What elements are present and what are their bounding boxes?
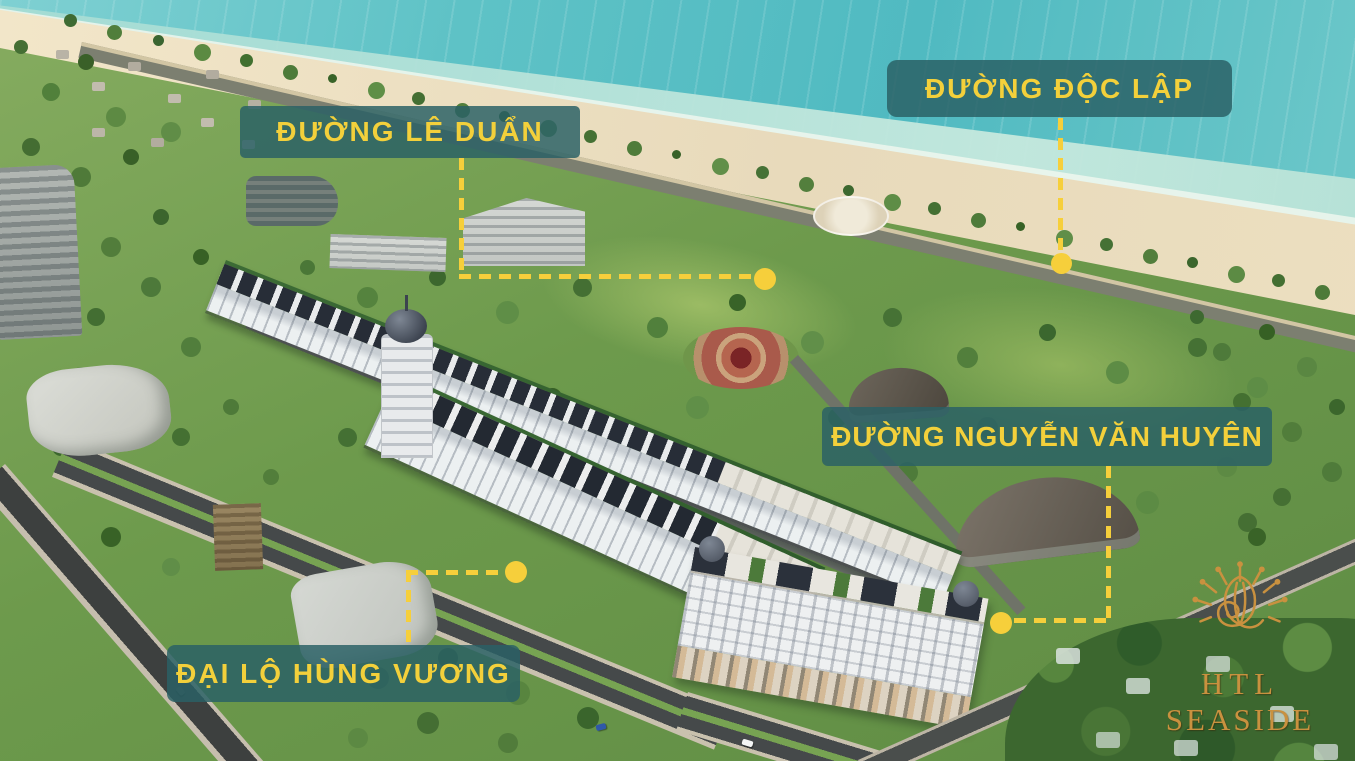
street-label-text: ĐƯỜNG LÊ DUẨN <box>276 116 544 148</box>
logo-wordmark-line2: SEASIDE <box>1160 702 1320 738</box>
leader-line-hung-vuong-horizontal <box>406 570 503 575</box>
street-label-hung-vuong: ĐẠI LỘ HÙNG VƯƠNG <box>167 645 520 702</box>
le-duan-office-building <box>463 198 585 266</box>
street-label-text: ĐƯỜNG ĐỘC LẬP <box>925 73 1194 105</box>
curved-office-block <box>246 176 338 226</box>
leader-dot-le-duan <box>754 268 776 290</box>
street-label-text: ĐƯỜNG NGUYỄN VĂN HUYÊN <box>831 421 1263 453</box>
leader-line-hung-vuong-vertical <box>406 570 411 645</box>
tree-cluster-park <box>300 260 315 275</box>
leader-line-doc-lap <box>1058 118 1063 252</box>
street-label-le-duan: ĐƯỜNG LÊ DUẨN <box>240 106 580 158</box>
midrise-slab <box>329 234 446 272</box>
leader-dot-nguyen-van-huyen <box>990 612 1012 634</box>
brown-block-building <box>213 503 263 571</box>
leader-line-le-duan-vertical <box>459 158 464 276</box>
street-label-nguyen-van-huyen: ĐƯỜNG NGUYỄN VĂN HUYÊN <box>822 407 1272 466</box>
beach-plaza <box>813 196 889 236</box>
logo-wordmark-line1: HTL <box>1160 666 1320 702</box>
leader-dot-doc-lap <box>1051 253 1072 274</box>
curved-roof-building <box>948 467 1141 569</box>
car <box>595 723 606 731</box>
tree-cluster-shoreline <box>64 14 77 27</box>
street-label-text: ĐẠI LỘ HÙNG VƯƠNG <box>176 658 511 690</box>
glass-villa-roofs <box>1056 648 1080 664</box>
leader-line-nguyen-van-huyen-horizontal <box>1014 618 1112 623</box>
street-label-doc-lap: ĐƯỜNG ĐỘC LẬP <box>887 60 1232 117</box>
circular-garden-plaza <box>683 327 799 389</box>
civic-building <box>24 359 174 461</box>
leader-line-le-duan-horizontal <box>459 274 755 279</box>
htl-seaside-logo: HTL SEASIDE <box>1160 560 1320 738</box>
corner-dome-tower <box>381 334 433 458</box>
leader-line-nguyen-van-huyen-vertical <box>1106 466 1111 618</box>
highrise-tower <box>0 164 82 340</box>
leader-dot-hung-vuong <box>505 561 527 583</box>
villa-roof-cluster <box>56 50 69 59</box>
tree-cluster-right-strip <box>1190 310 1204 324</box>
shell-icon <box>1188 560 1292 664</box>
aerial-render-scene: ĐƯỜNG LÊ DUẨN ĐƯỜNG ĐỘC LẬP ĐƯỜNG NGUYỄN… <box>0 0 1355 761</box>
tree-cluster-left <box>14 40 28 54</box>
